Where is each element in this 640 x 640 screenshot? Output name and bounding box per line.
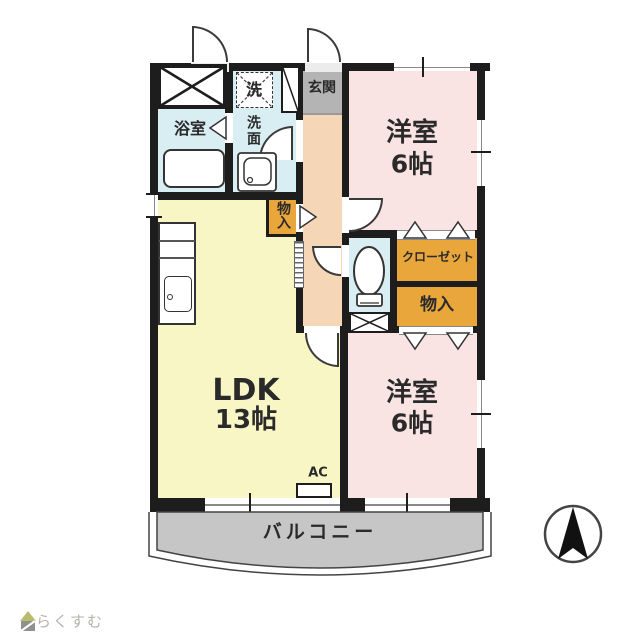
toilet-icon [354, 247, 384, 306]
label-bedroom-top-size: 6帖 [391, 151, 433, 180]
label-ldk: LDK [212, 374, 279, 409]
storage-hall-folding-door-icon [300, 206, 316, 228]
label-bedroom-top-name: 洋室 [386, 118, 438, 148]
label-bathroom: 浴室 [174, 120, 206, 138]
label-closet: クローゼット [402, 251, 474, 265]
label-bedroom-bottom: 洋室 [386, 379, 438, 409]
storage-folding-door-icon [404, 333, 426, 349]
label-bedroom-top: 洋室 [386, 119, 438, 149]
washbasin-icon [238, 153, 276, 191]
label-washer: 洗 [246, 81, 262, 99]
pipe-space-x-icon [351, 314, 388, 331]
label-entrance: 玄関 [308, 80, 336, 96]
label-washroom: 洗面 [245, 115, 261, 147]
label-balcony: バルコニー [263, 522, 378, 544]
compass-north-icon [545, 506, 601, 562]
label-bedroom-bottom-size: 6帖 [391, 410, 433, 439]
shoe-cabinet-diagonal [283, 68, 298, 111]
watermark-house-icon [20, 611, 36, 631]
utility-closet-x-icon [160, 67, 224, 106]
closet-folding-door-icon [404, 222, 426, 238]
closet-folding-door-icon [447, 222, 469, 238]
label-ac: AC [308, 467, 328, 482]
label-storage-hall: 物入 [275, 201, 291, 229]
label-ldk-size: 13帖 [215, 406, 277, 436]
label-storage-right: 物入 [420, 296, 454, 316]
floorplan: 浴室 洗 洗面 玄関 洋室 6帖 クローゼット 物入 物入 LDK 13帖 洋室… [0, 0, 640, 640]
storage-folding-door-icon [447, 333, 469, 349]
watermark-text: らくすむ [36, 613, 104, 630]
bath-folding-door-icon [210, 117, 226, 139]
